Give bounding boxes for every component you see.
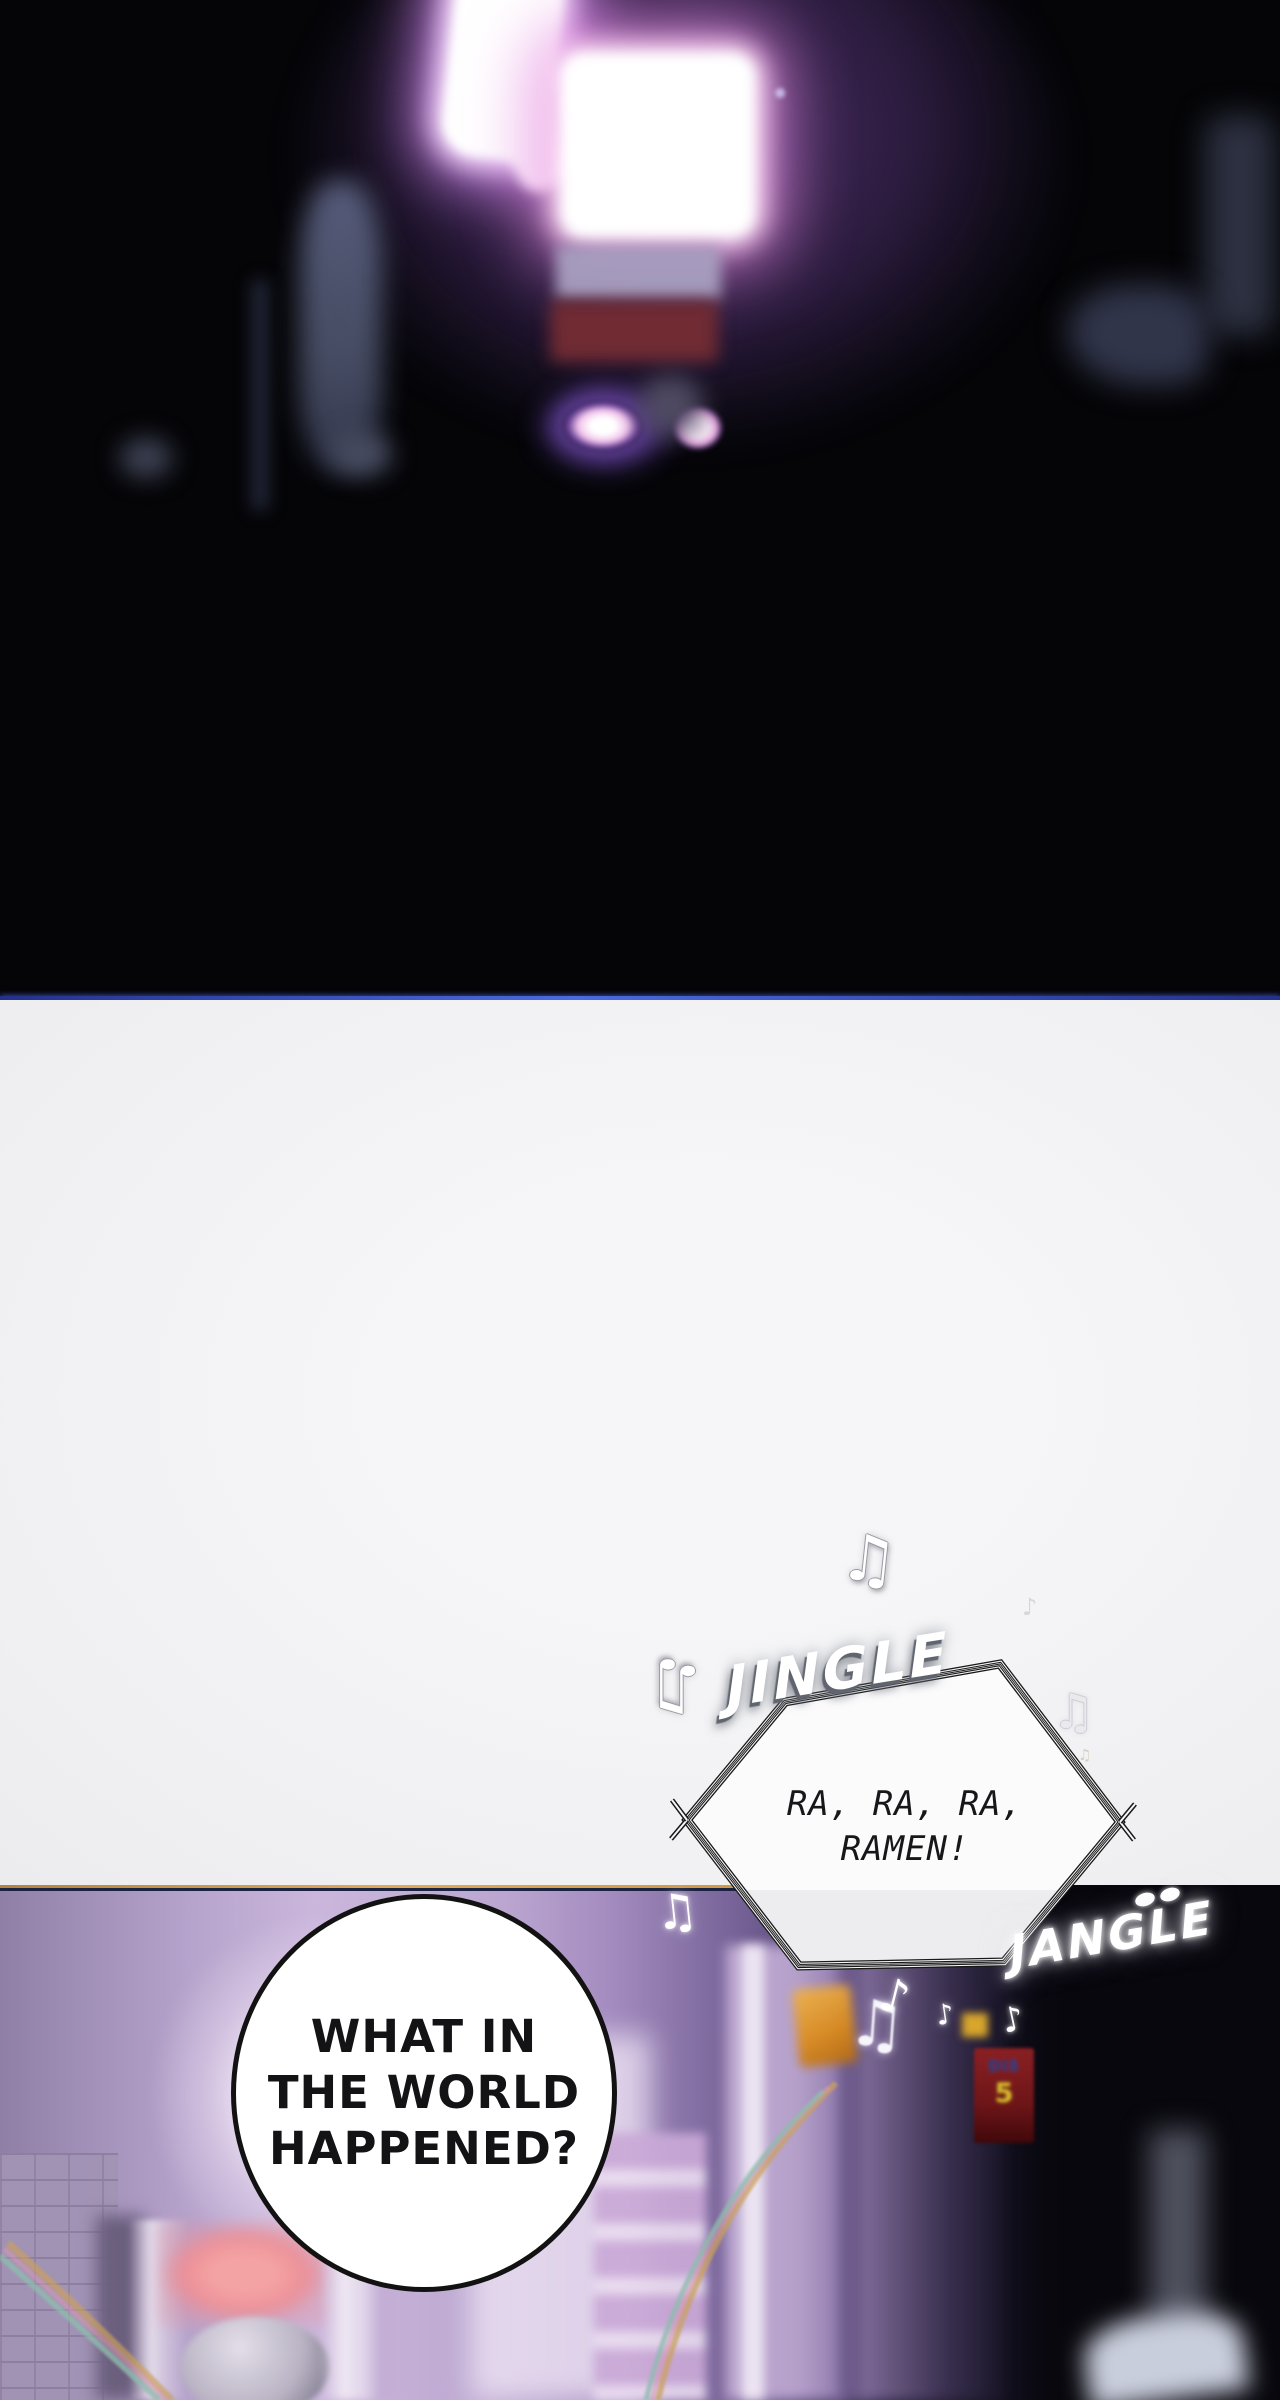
circle-bubble-text: WHAT IN THE WORLD HAPPENED?	[268, 2009, 580, 2176]
circle-line-3: HAPPENED?	[268, 2121, 580, 2177]
hexagon-line-2: RAMEN!	[765, 1827, 1045, 1872]
hexagon-line-1: RA, RA, RA,	[765, 1782, 1045, 1827]
circle-line-1: WHAT IN	[268, 2009, 580, 2065]
webtoon-page: ♫ ♫ ♪ ♪ ♫ ♫	[0, 0, 1280, 2400]
hexagon-bubble	[0, 0, 1280, 2400]
circle-speech-bubble: WHAT IN THE WORLD HAPPENED?	[231, 1894, 617, 2292]
circle-line-2: THE WORLD	[268, 2065, 580, 2121]
hexagon-bubble-text: RA, RA, RA, RAMEN!	[765, 1782, 1045, 1872]
